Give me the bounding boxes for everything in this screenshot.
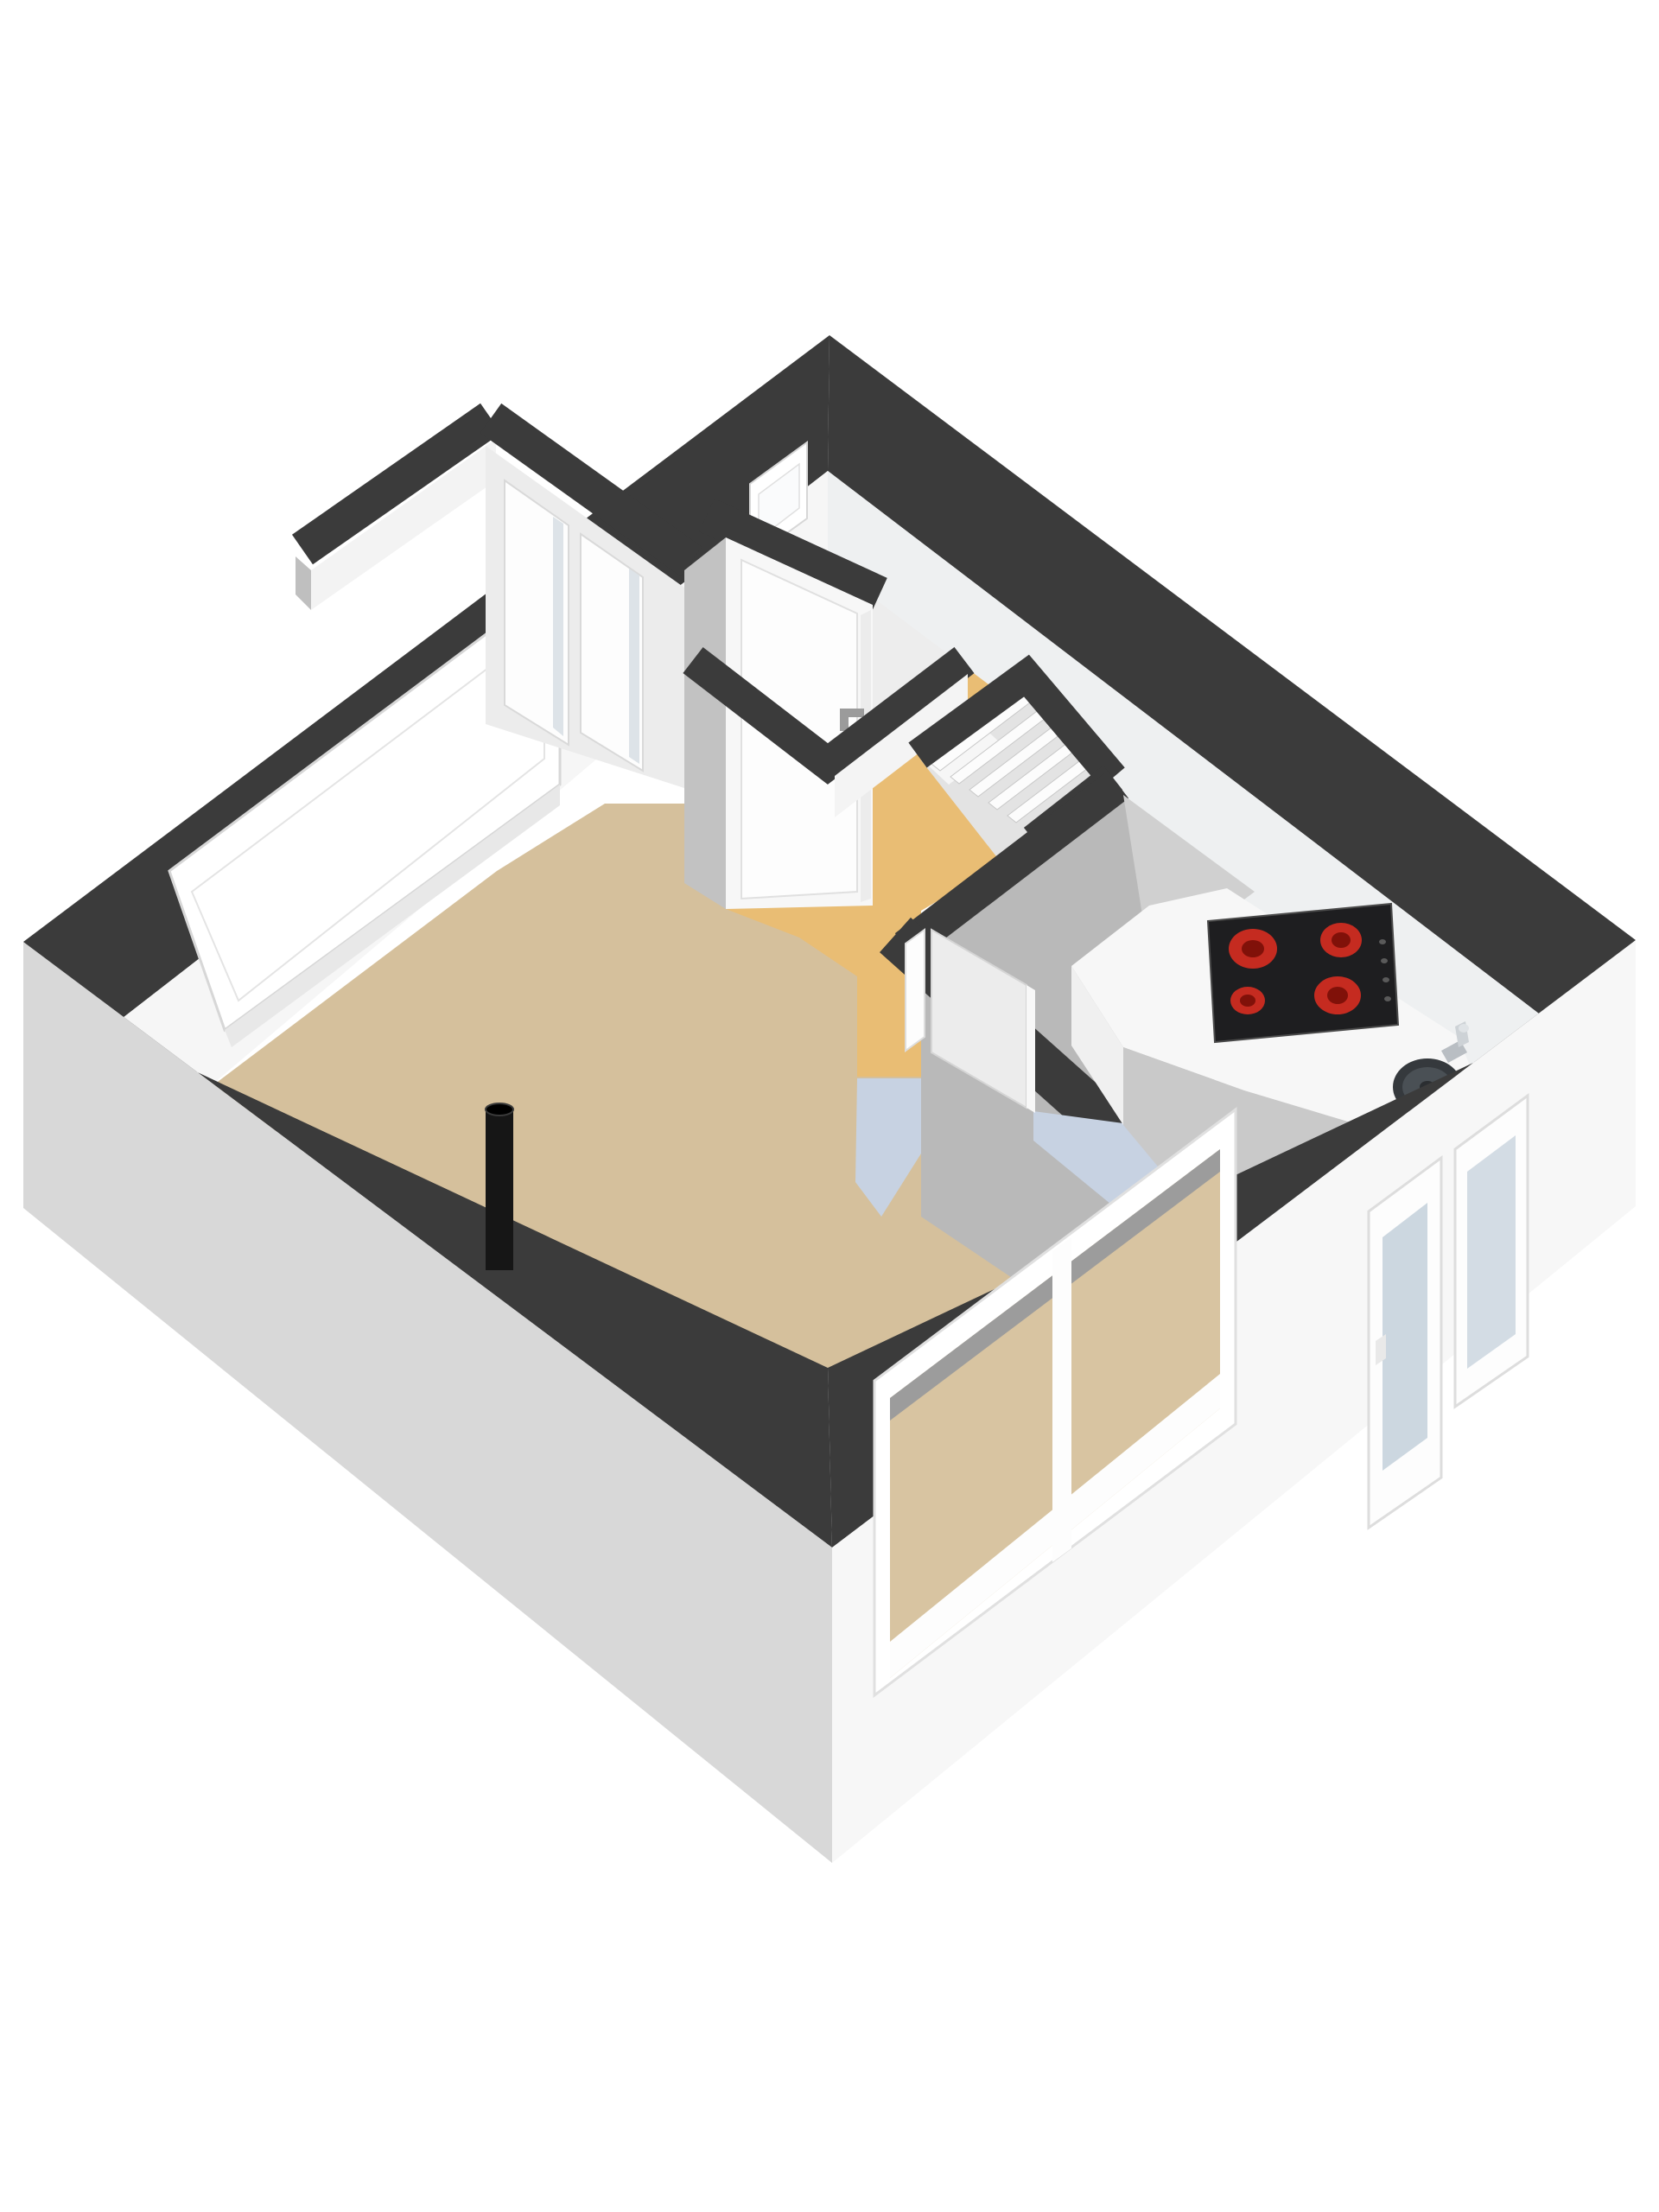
cooktop-knob-4 [1384,996,1391,1001]
entrance-wall-side [684,537,726,909]
se-door-glass [1382,1203,1427,1471]
cooktop-knob-1 [1379,939,1386,944]
se-sidelight-glass [1467,1135,1516,1369]
flue-pipe-top [486,1103,513,1116]
flue-pipe-body [486,1109,513,1270]
kitchen-door-frame [906,930,925,1051]
sink-faucet-head [1459,1024,1469,1033]
kitchen-door-leaf-edge [1027,985,1035,1113]
burner-2-core [1332,932,1351,948]
cooktop-knob-2 [1381,958,1388,963]
hall-door-2-glass [629,569,639,764]
floorplan-3d-figure [0,0,1659,2212]
burner-4-core [1327,987,1348,1004]
cooktop-panel [1208,904,1398,1042]
cooktop-knob-3 [1382,977,1389,982]
hall-door-1-glass [553,517,563,736]
burner-1-core [1242,940,1264,957]
burner-3-core [1240,995,1255,1007]
floorplan-svg [0,0,1659,2212]
alcove-wall-side [296,556,311,610]
